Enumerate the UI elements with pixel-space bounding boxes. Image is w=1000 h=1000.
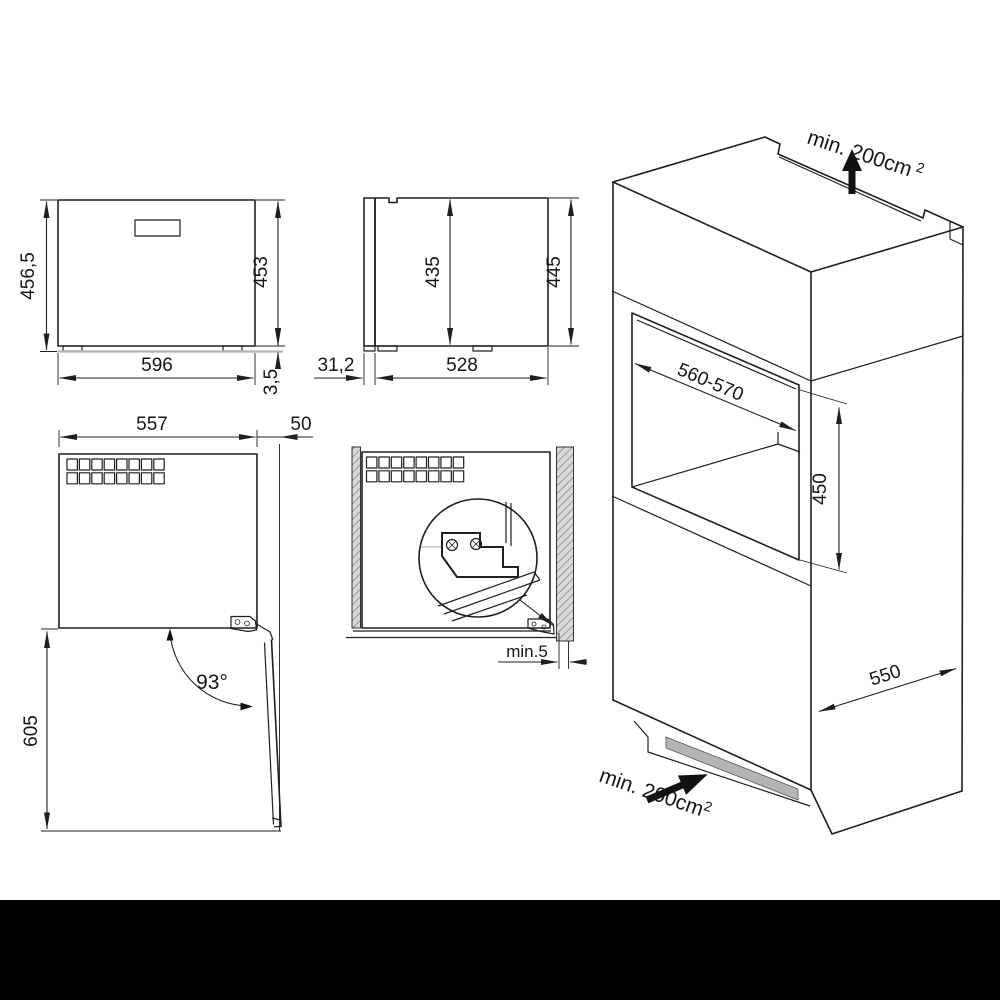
cabinet-wall-left [352, 447, 361, 628]
cabinet-top-front-edges [613, 182, 963, 272]
display-panel [135, 220, 180, 236]
cabinet-wall-right [557, 447, 574, 641]
top-view-installed: min.5 [346, 447, 587, 669]
dim-min-gap: min.5 [506, 642, 548, 661]
dim-side-total-height: 445 [544, 256, 565, 288]
vent-bottom-label: min. 200cm2 [596, 762, 714, 824]
front-view: 456,5 453 3,5 596 [18, 200, 285, 395]
installation-drawing-page: 456,5 453 3,5 596 435 445 31,2 [0, 0, 1000, 1000]
dim-side-inner-height: 435 [423, 256, 444, 288]
vent-top-label: min. 200cm2 [804, 124, 926, 185]
vent-grid [67, 459, 164, 484]
technical-drawing: 456,5 453 3,5 596 435 445 31,2 [0, 0, 1000, 1000]
niche-floor-edge [632, 444, 778, 487]
dim-front-total-height: 456,5 [18, 252, 39, 300]
dim-front-width: 596 [141, 355, 173, 376]
dim-side-door-thickness: 31,2 [318, 355, 355, 376]
door-angle-arc [170, 633, 249, 706]
dim-door-angle: 93° [196, 671, 228, 694]
hinge-screw [245, 621, 250, 626]
hinge-bracket [231, 617, 257, 632]
bottom-black-bar [0, 900, 1000, 1000]
detail-leader [520, 600, 553, 626]
vent-grid [367, 457, 464, 482]
dim-door-clearance: 50 [290, 414, 311, 435]
hinge-screw [235, 620, 240, 625]
dim-side-depth: 528 [446, 355, 478, 376]
top-view-body [59, 454, 257, 628]
cabinet-back-right-edge [962, 227, 963, 791]
dim-top-width: 557 [136, 414, 168, 435]
niche-opening [632, 313, 799, 560]
top-view-door-open: 557 50 605 93° [21, 414, 313, 831]
front-view-body [58, 200, 255, 346]
dim-front-feet-height: 3,5 [261, 369, 282, 395]
dim-front-body-height: 453 [251, 256, 272, 288]
side-view: 435 445 31,2 528 [314, 198, 579, 385]
cabinet-base-edges [811, 790, 962, 834]
side-view-body [375, 198, 548, 346]
open-door [265, 640, 282, 827]
dim-niche-width: 560-570 [674, 359, 746, 406]
cabinet-top-back-edge [613, 137, 963, 227]
isometric-cabinet-view: 560-570 450 550 min. 200cm2 min. 200cm2 [596, 124, 963, 834]
dim-open-depth: 605 [21, 715, 42, 747]
dim-niche-height: 450 [810, 473, 831, 505]
side-view-door [364, 198, 375, 346]
